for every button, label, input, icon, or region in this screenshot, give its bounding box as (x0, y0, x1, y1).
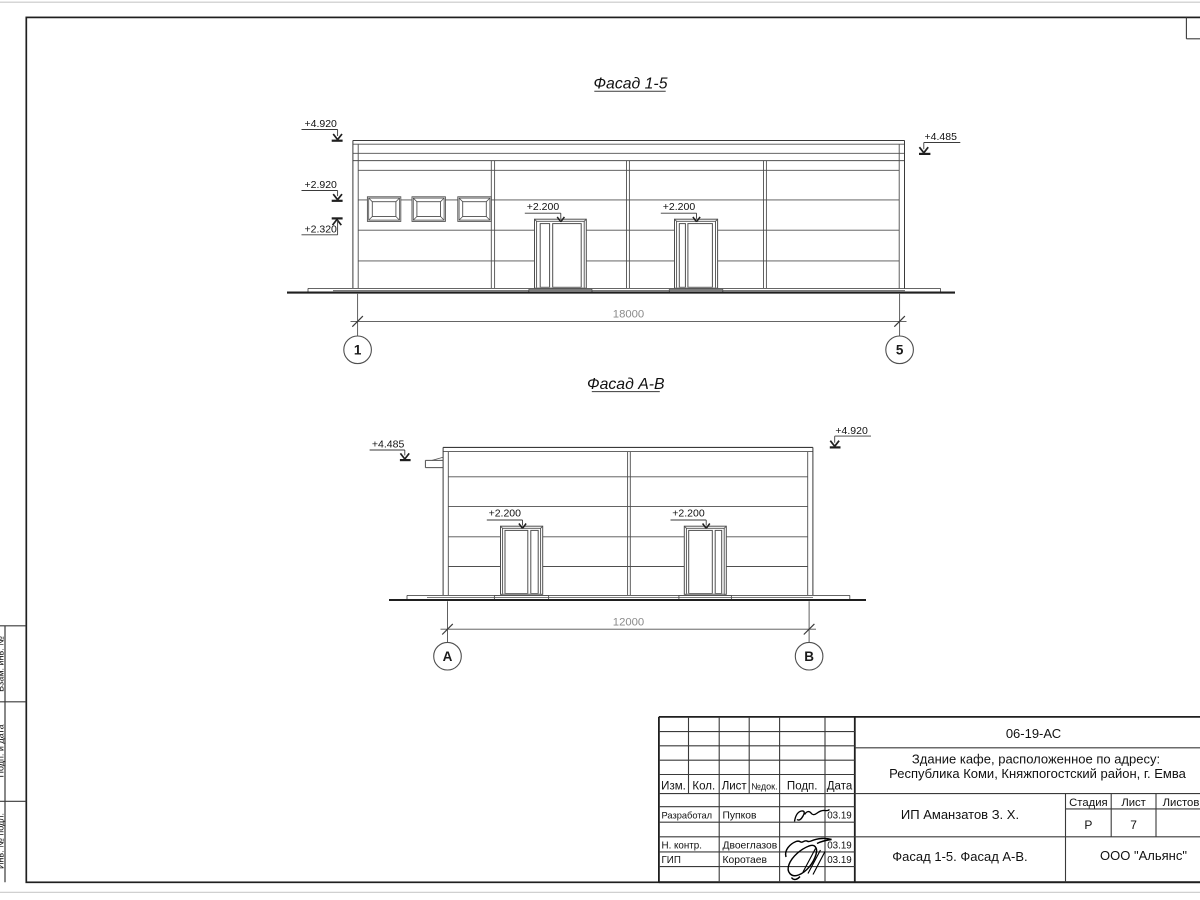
svg-text:Дата: Дата (827, 780, 853, 792)
svg-text:06-19-АС: 06-19-АС (1006, 726, 1061, 741)
svg-text:03.19: 03.19 (827, 855, 852, 866)
svg-text:1: 1 (354, 343, 362, 358)
svg-text:+4.920: +4.920 (835, 425, 868, 437)
svg-text:Стадия: Стадия (1069, 797, 1108, 809)
svg-text:+2.200: +2.200 (489, 508, 522, 520)
svg-text:12000: 12000 (613, 616, 644, 628)
svg-text:А: А (443, 649, 453, 664)
svg-text:Инв. № подл.: Инв. № подл. (0, 813, 5, 869)
svg-text:Н. контр.: Н. контр. (662, 840, 702, 851)
svg-text:+2.200: +2.200 (527, 201, 560, 213)
svg-text:03.19: 03.19 (827, 840, 852, 851)
svg-text:Лист: Лист (722, 780, 748, 792)
svg-text:Фасад А-В: Фасад А-В (587, 376, 664, 393)
svg-text:Подп. и дата: Подп. и дата (0, 724, 5, 777)
svg-text:Листов: Листов (1163, 797, 1200, 809)
svg-text:18000: 18000 (613, 309, 644, 321)
svg-text:Подп.: Подп. (787, 780, 818, 792)
svg-text:Здание кафе, расположенное по: Здание кафе, расположенное по адресу: (912, 751, 1160, 766)
svg-text:Р: Р (1084, 818, 1092, 832)
svg-text:№док.: №док. (751, 781, 777, 791)
svg-text:Коротаев: Коротаев (723, 855, 768, 866)
svg-text:5: 5 (896, 343, 904, 358)
svg-text:Республика Коми, Княжпогостски: Республика Коми, Княжпогостский район, г… (889, 766, 1186, 781)
svg-text:Фасад 1-5. Фасад А-В.: Фасад 1-5. Фасад А-В. (892, 849, 1027, 864)
svg-text:+2.200: +2.200 (663, 201, 696, 213)
svg-text:Изм.: Изм. (661, 780, 686, 792)
svg-text:+2.320: +2.320 (304, 224, 337, 236)
svg-text:03.19: 03.19 (827, 811, 852, 822)
svg-text:ГИП: ГИП (662, 855, 681, 866)
svg-text:+2.920: +2.920 (304, 179, 337, 191)
svg-text:Двоеглазов: Двоеглазов (723, 840, 778, 851)
svg-text:Пупков: Пупков (723, 811, 757, 822)
svg-text:Лист: Лист (1121, 797, 1146, 809)
svg-text:Разработал: Разработал (662, 811, 713, 821)
svg-text:+4.485: +4.485 (925, 131, 958, 143)
svg-text:Кол.: Кол. (692, 780, 715, 792)
svg-text:Фасад 1-5: Фасад 1-5 (594, 76, 668, 93)
svg-text:+4.485: +4.485 (372, 439, 405, 451)
svg-text:В: В (804, 649, 814, 664)
svg-text:+2.200: +2.200 (672, 508, 705, 520)
svg-text:ООО "Альянс": ООО "Альянс" (1100, 848, 1187, 863)
svg-text:ИП Аманзатов З. Х.: ИП Аманзатов З. Х. (901, 807, 1019, 822)
svg-text:7: 7 (1130, 818, 1137, 832)
svg-text:Взам. инв. №: Взам. инв. № (0, 636, 5, 692)
svg-text:+4.920: +4.920 (304, 118, 337, 130)
